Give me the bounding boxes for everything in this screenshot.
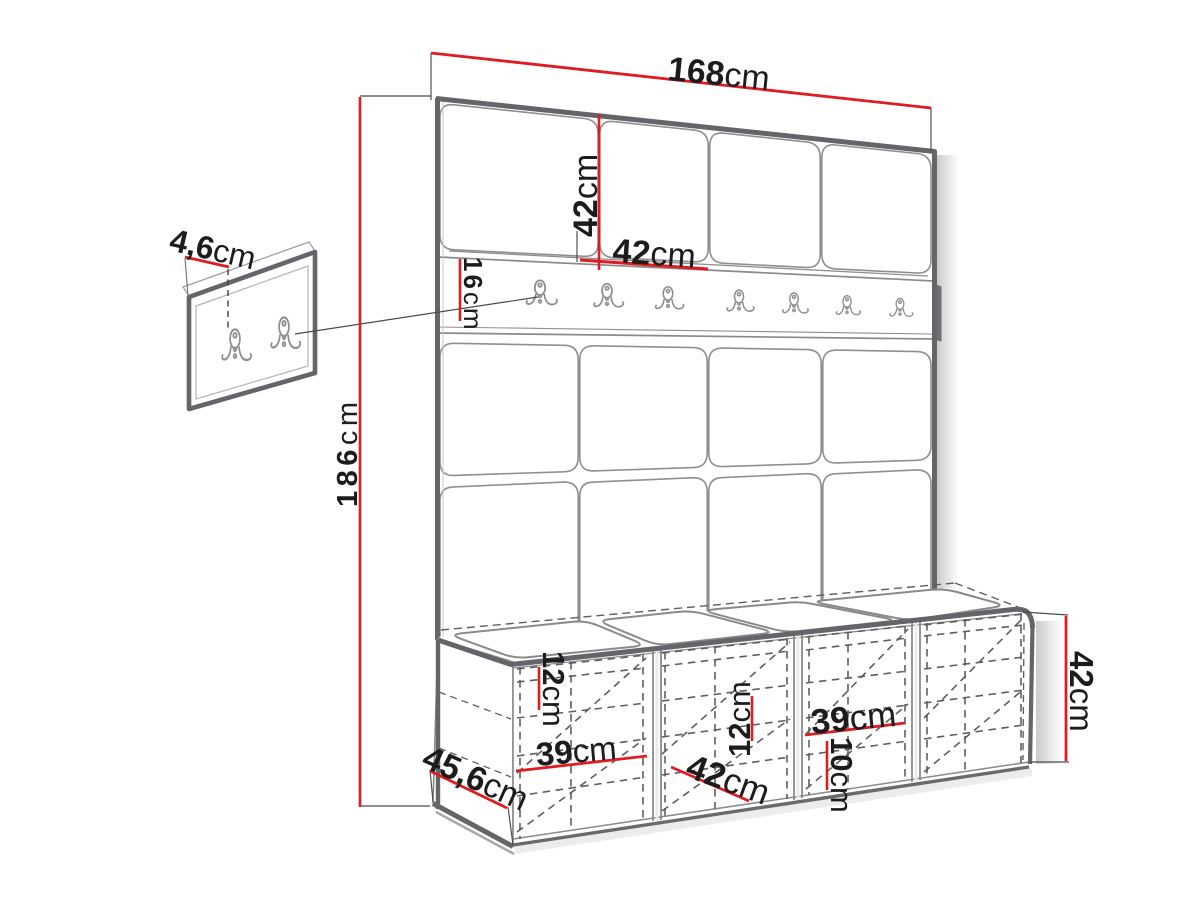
svg-text:12cm: 12cm — [722, 681, 757, 757]
svg-text:39cm: 39cm — [534, 729, 618, 773]
svg-text:4,6cm: 4,6cm — [166, 222, 259, 277]
svg-text:168cm: 168cm — [666, 50, 771, 98]
svg-text:12cm: 12cm — [536, 651, 571, 727]
svg-text:16cm: 16cm — [458, 257, 488, 333]
svg-text:42cm: 42cm — [611, 232, 697, 276]
svg-text:42cm: 42cm — [567, 154, 605, 237]
svg-text:39cm: 39cm — [809, 695, 898, 742]
svg-text:42cm: 42cm — [1063, 651, 1100, 732]
svg-text:186cm: 186cm — [332, 397, 364, 507]
svg-text:10cm: 10cm — [824, 737, 859, 813]
